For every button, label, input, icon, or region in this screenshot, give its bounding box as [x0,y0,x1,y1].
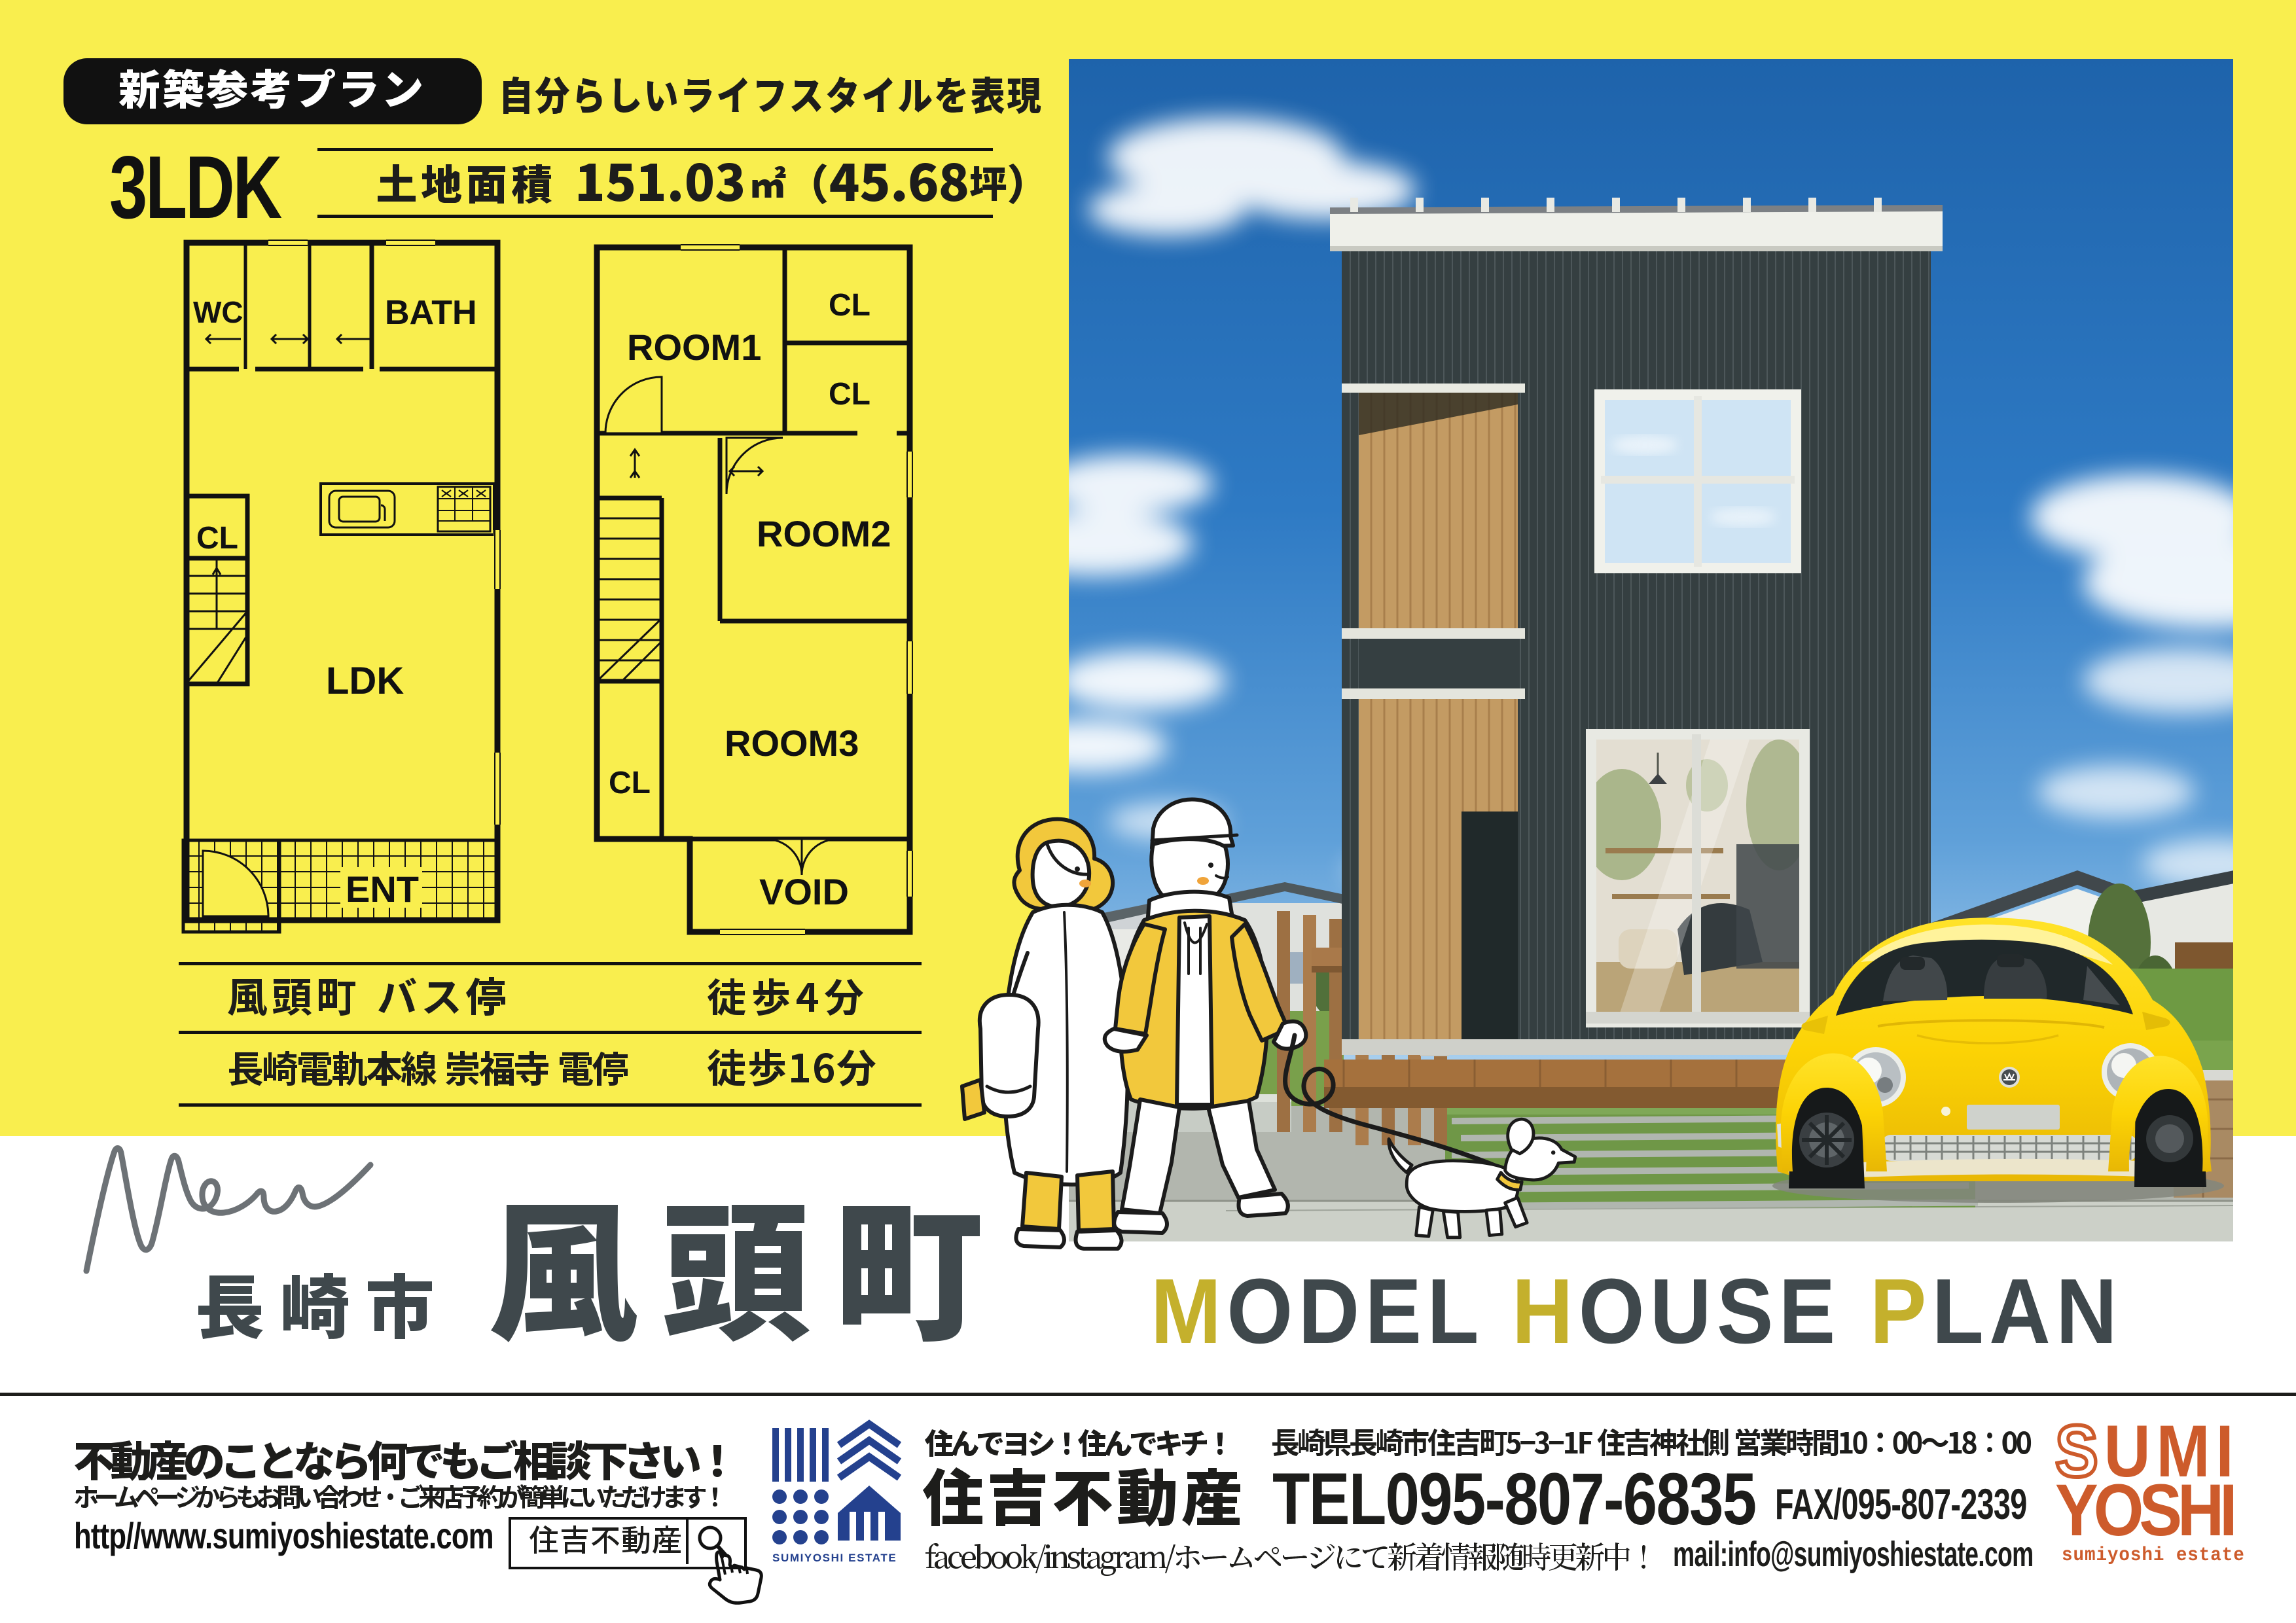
svg-text:SUMIYOSHI ESTATE: SUMIYOSHI ESTATE [772,1552,897,1564]
